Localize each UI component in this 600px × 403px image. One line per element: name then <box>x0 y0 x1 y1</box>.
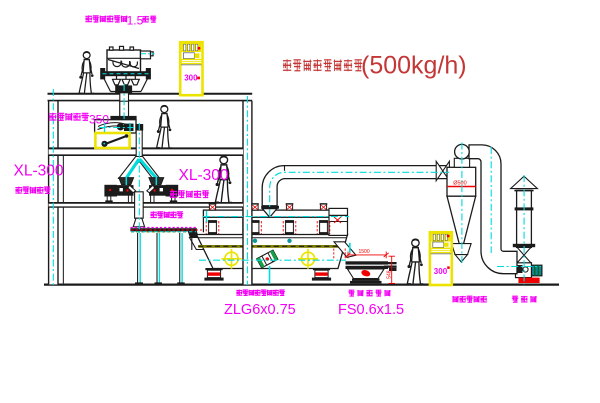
svg-text:FS0.6x1.5: FS0.6x1.5 <box>338 302 404 318</box>
svg-text:ZLG6x0.75: ZLG6x0.75 <box>224 302 296 318</box>
svg-text:Ø500: Ø500 <box>453 180 466 186</box>
svg-text:548: 548 <box>387 270 393 279</box>
svg-text:1500: 1500 <box>359 249 370 255</box>
svg-text:1.5: 1.5 <box>127 14 144 28</box>
svg-text:350: 350 <box>89 113 109 127</box>
svg-text:(500kg/h): (500kg/h) <box>361 51 467 79</box>
svg-text:300: 300 <box>434 267 448 276</box>
svg-text:XL-300: XL-300 <box>179 167 229 184</box>
svg-text:300: 300 <box>184 74 198 83</box>
svg-text:XL-300: XL-300 <box>14 163 64 180</box>
